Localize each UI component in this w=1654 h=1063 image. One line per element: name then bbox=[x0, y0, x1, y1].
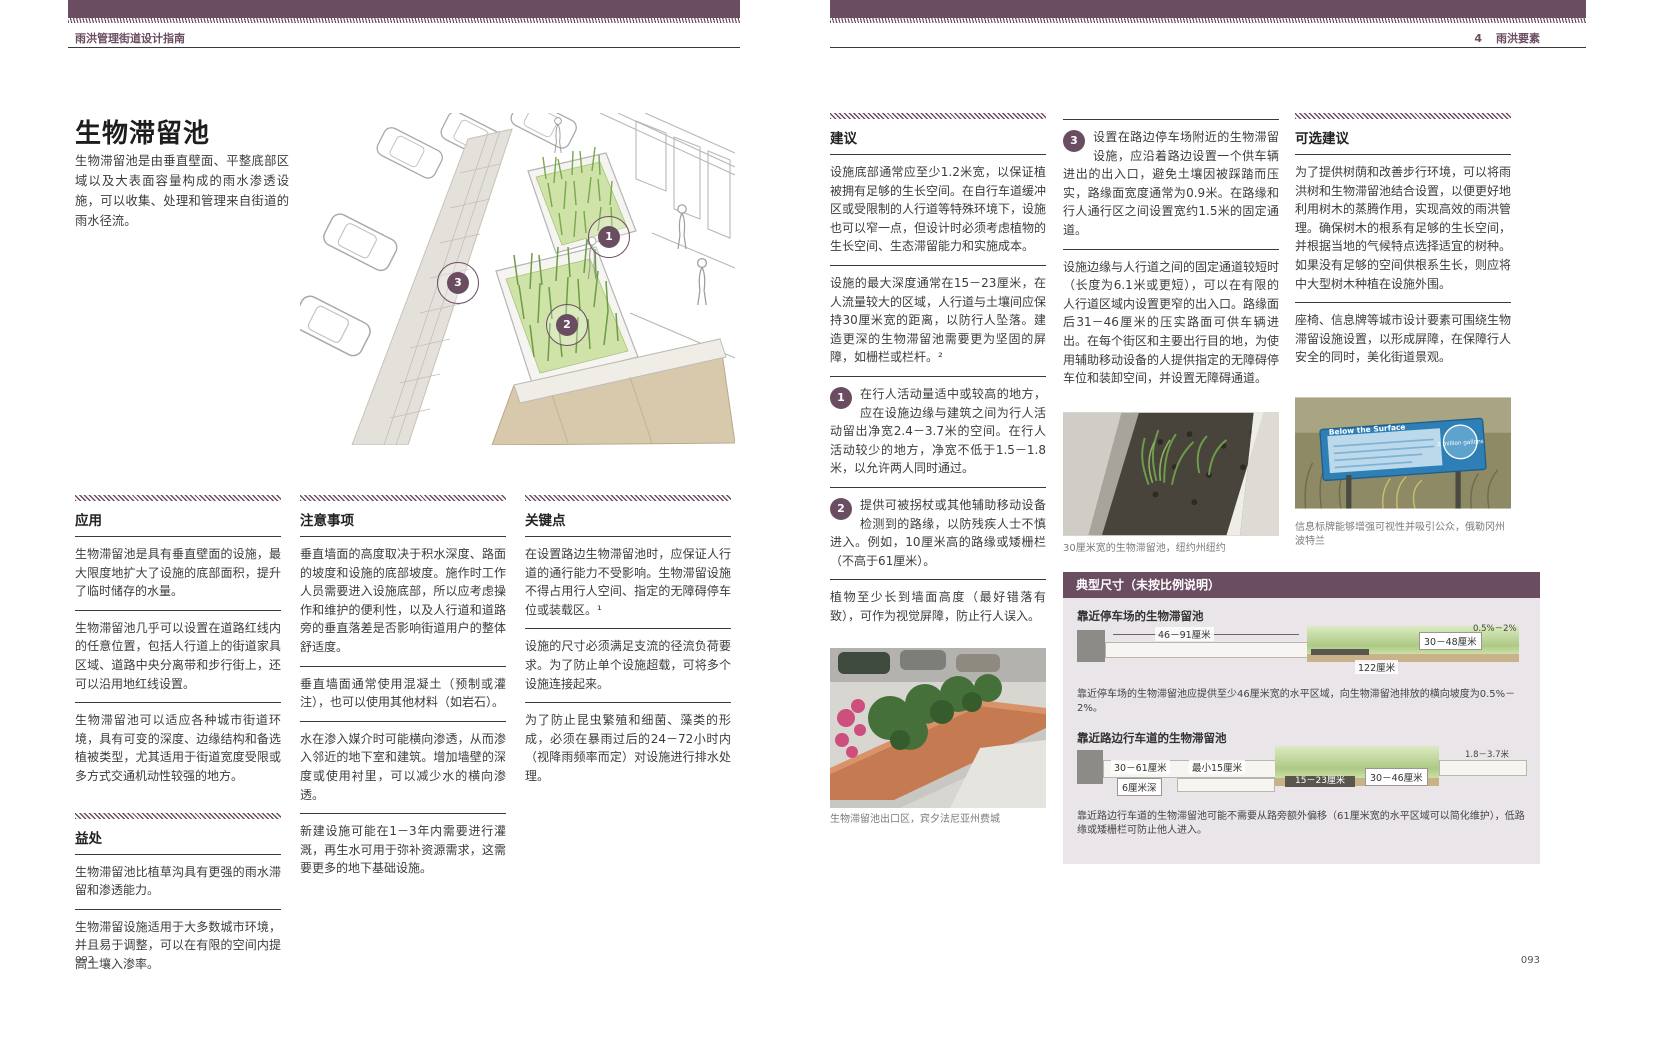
dim-label-box: 30－46厘米 bbox=[1365, 768, 1428, 786]
section-heading-benefits: 益处 bbox=[75, 825, 281, 855]
paragraph: 生物滞留池是具有垂直壁面的设施，最大限度地扩大了设施的底部面积，提升了临时储存的… bbox=[75, 537, 281, 610]
top-accent-bar bbox=[830, 0, 1586, 18]
paragraph: 生物滞留池比植草沟具有更强的雨水滞留和渗透能力。 bbox=[75, 855, 281, 909]
numbered-item-text: 提供可被拐杖或其他辅助移动设备检测到的路缘，以防残疾人士不慎进入。例如，10厘米… bbox=[830, 498, 1046, 568]
dim-label: 最小15厘米 bbox=[1189, 760, 1245, 774]
numbered-item-2: 2提供可被拐杖或其他辅助移动设备检测到的路缘，以防残疾人士不慎进入。例如，10厘… bbox=[830, 487, 1046, 579]
dim-label: 46－91厘米 bbox=[1155, 627, 1214, 641]
photo-caption: 信息标牌能够增强可视性并吸引公众，俄勒冈州波特兰 bbox=[1295, 521, 1511, 549]
paragraph: 生物滞留池几乎可以设置在道路红线内的任意位置，包括人行道上的街道家具区域、道路中… bbox=[75, 610, 281, 702]
paragraph: 设施的最大深度通常在15－23厘米，在人流量较大的区域，人行道与土壤间应保持30… bbox=[830, 265, 1046, 376]
sunken-band bbox=[1177, 778, 1275, 792]
section-hatch bbox=[525, 495, 731, 501]
column-access: 3设置在路边停车场附近的生物滞留设施，应沿着路边设置一个供车辆进出的出入口，避免… bbox=[1063, 113, 1279, 864]
figure-marker-ring-2: 2 bbox=[546, 304, 588, 346]
section-heading-considerations: 注意事项 bbox=[300, 507, 506, 537]
paragraph: 垂直墙面通常使用混凝土（预制或灌注），也可以使用其他材料（如岩石）。 bbox=[300, 666, 506, 721]
photo-bioretention-outlet bbox=[830, 648, 1046, 808]
section-hatch bbox=[830, 113, 1046, 119]
dim-label: 30－61厘米 bbox=[1111, 760, 1170, 774]
numbered-item-1: 1在行人活动量适中或较高的地方，应在设施边缘与建筑之间为行人活动留出净宽2.4－… bbox=[830, 376, 1046, 487]
numbered-item-text: 在行人活动量适中或较高的地方，应在设施边缘与建筑之间为行人活动留出净宽2.4－3… bbox=[830, 387, 1046, 475]
top-accent-bar-hatch bbox=[68, 18, 740, 23]
paragraph: 垂直墙面的高度取决于积水深度、路面的坡度和设施的底部坡度。施作时工作人员需要进入… bbox=[300, 537, 506, 666]
dim-label-dark: 15－23厘米 bbox=[1285, 776, 1355, 787]
dim-label: 122厘米 bbox=[1355, 660, 1398, 674]
figure-marker-ring-3: 3 bbox=[437, 262, 479, 304]
diagram2-title: 靠近路边行车道的生物滞留池 bbox=[1077, 730, 1227, 746]
intro-paragraph: 生物滞留池是由垂直壁面、平整底部区域以及大表面容量构成的雨水渗透设施，可以收集、… bbox=[75, 152, 289, 232]
diagram1-title: 靠近停车场的生物滞留池 bbox=[1077, 608, 1204, 624]
diagram-parking-section: 46－91厘米 122厘米 30－48厘米 0.5%－2% bbox=[1077, 624, 1526, 682]
figure-marker-3: 3 bbox=[447, 272, 469, 294]
dim-label: 1.8－3.7米 bbox=[1465, 748, 1509, 760]
page-number-left: 092 bbox=[75, 955, 94, 966]
figure-marker-1: 1 bbox=[598, 226, 620, 248]
header-rule bbox=[68, 47, 740, 48]
photo-caption: 30厘米宽的生物滞留池，纽约州纽约 bbox=[1063, 542, 1279, 556]
section-hatch bbox=[75, 495, 281, 501]
diagram-roadside-section: 30－61厘米 最小15厘米 6厘米深 15－23厘米 30－46厘米 1.8－… bbox=[1077, 746, 1526, 804]
dim-label-box: 30－48厘米 bbox=[1419, 632, 1482, 650]
paragraph: 新建设施可能在1－3年内需要进行灌溉，再生水可用于弥补资源需求，这需要更多的地下… bbox=[300, 813, 506, 887]
numbered-item-3: 3设置在路边停车场附近的生物滞留设施，应沿着路边设置一个供车辆进出的出入口，避免… bbox=[1063, 119, 1279, 249]
photo-caption: 生物滞留池出口区，宾夕法尼亚州费城 bbox=[830, 813, 1046, 827]
diagram2-note: 靠近路边行车道的生物滞留池可能不需要从路旁额外偏移（61厘米宽的水平区域可以简化… bbox=[1077, 810, 1526, 839]
typical-dimensions-title: 典型尺寸（未按比例说明） bbox=[1063, 572, 1540, 598]
dim-label-box: 6厘米深 bbox=[1117, 778, 1162, 796]
paragraph: 设施的尺寸必须满足支流的径流负荷要求。为了防止单个设施超载，可将多个设施连接起来… bbox=[525, 628, 731, 702]
section-hatch bbox=[300, 495, 506, 501]
photo-curb-bioretention bbox=[1063, 411, 1279, 537]
section-heading-recommendations: 建议 bbox=[830, 125, 1046, 155]
diagram1-note: 靠近停车场的生物滞留池应提供至少46厘米宽的水平区域，向生物滞留池排放的横向坡度… bbox=[1077, 688, 1526, 717]
section-heading-optional: 可选建议 bbox=[1295, 125, 1511, 155]
item-number-badge: 2 bbox=[830, 498, 852, 520]
chapter-title: 雨洪要素 bbox=[1496, 32, 1540, 45]
page-number-right: 093 bbox=[830, 955, 1540, 966]
page-title: 生物滞留池 bbox=[75, 113, 210, 150]
typical-dimensions-panel: 典型尺寸（未按比例说明） 靠近停车场的生物滞留池 46－91厘米 122厘米 3… bbox=[1063, 572, 1540, 864]
header-rule bbox=[830, 47, 1586, 48]
paragraph: 设施底部通常应至少1.2米宽，以保证植被拥有足够的生长空间。在自行车道缓冲区或受… bbox=[830, 155, 1046, 265]
figure-marker-ring-1: 1 bbox=[588, 216, 630, 258]
column-optional-recommendations: 可选建议 为了提供树荫和改善步行环境，可以将雨洪树和生物滞留池结合设置，以便更好… bbox=[1295, 113, 1511, 549]
column-key-points: 关键点 在设置路边生物滞留池时，应保证人行道的通行能力不受影响。生物滞留设施不得… bbox=[525, 495, 731, 795]
section-heading-key-points: 关键点 bbox=[525, 507, 731, 537]
chapter-number: 4 bbox=[1474, 32, 1482, 45]
mulch-strip bbox=[1311, 649, 1369, 655]
column-considerations: 注意事项 垂直墙面的高度取决于积水深度、路面的坡度和设施的底部坡度。施作时工作人… bbox=[300, 495, 506, 887]
paragraph: 生物滞留池可以适应各种城市街道环境，具有可变的深度、边缘结构和备选植被类型，尤其… bbox=[75, 702, 281, 794]
section-hatch bbox=[75, 813, 281, 819]
wall-block bbox=[1077, 750, 1103, 784]
column-recommendations: 建议 设施底部通常应至少1.2米宽，以保证植被拥有足够的生长空间。在自行车道缓冲… bbox=[830, 113, 1046, 827]
photo-information-sign: Below the Surface 2 million gallons bbox=[1295, 390, 1511, 516]
section-heading-application: 应用 bbox=[75, 507, 281, 537]
paragraph: 为了防止昆虫繁殖和细菌、藻类的形成，必须在暴雨过后的24－72小时内（视降雨频率… bbox=[525, 702, 731, 794]
right-page: 4雨洪要素 建议 设施底部通常应至少1.2米宽，以保证植被拥有足够的生长空间。在… bbox=[830, 0, 1586, 1063]
wall-block bbox=[1077, 630, 1105, 662]
paragraph: 座椅、信息牌等城市设计要素可围绕生物滞留设施设置，以形成屏障，在保障行人安全的同… bbox=[1295, 302, 1511, 376]
top-accent-bar-hatch bbox=[830, 18, 1586, 23]
paragraph: 水在渗入媒介时可能横向渗透，从而渗入邻近的地下室和建筑。增加墙壁的深度或使用衬里… bbox=[300, 721, 506, 813]
pavement-band bbox=[1439, 760, 1527, 776]
left-page: 雨洪管理街道设计指南 生物滞留池 生物滞留池是由垂直壁面、平整底部区域以及大表面… bbox=[68, 0, 740, 1063]
top-accent-bar bbox=[68, 0, 740, 18]
paragraph: 植物至少长到墙面高度（最好错落有致），可作为视觉屏障，防止行人误入。 bbox=[830, 579, 1046, 634]
paragraph: 设施边缘与人行道之间的固定通道较短时（长度为6.1米或更短），可以在有限的人行道… bbox=[1063, 249, 1279, 397]
paragraph: 在设置路边生物滞留池时，应保证人行道的通行能力不受影响。生物滞留设施不得占用行人… bbox=[525, 537, 731, 628]
running-header-right: 4雨洪要素 bbox=[830, 30, 1540, 46]
soil-band bbox=[1307, 654, 1519, 662]
figure-marker-2: 2 bbox=[556, 314, 578, 336]
slope-label: 0.5%－2% bbox=[1473, 622, 1517, 634]
street-illustration-drawing bbox=[300, 113, 735, 445]
item-number-badge: 1 bbox=[830, 387, 852, 409]
street-illustration: 1 2 3 bbox=[300, 113, 735, 445]
section-hatch bbox=[1295, 113, 1511, 119]
paragraph: 为了提供树荫和改善步行环境，可以将雨洪树和生物滞留池结合设置，以便更好地利用树木… bbox=[1295, 155, 1511, 302]
item-number-badge: 3 bbox=[1063, 130, 1085, 152]
paragraph: 生物滞留设施适用于大多数城市环境，并且易于调整，可以在有限的空间内提高土壤入渗率… bbox=[75, 909, 281, 983]
column-application: 应用 生物滞留池是具有垂直壁面的设施，最大限度地扩大了设施的底部面积，提升了临时… bbox=[75, 495, 281, 983]
numbered-item-text: 设置在路边停车场附近的生物滞留设施，应沿着路边设置一个供车辆进出的出入口，避免土… bbox=[1063, 130, 1279, 237]
running-header-left: 雨洪管理街道设计指南 bbox=[75, 30, 733, 46]
pavement-band bbox=[1105, 642, 1309, 658]
